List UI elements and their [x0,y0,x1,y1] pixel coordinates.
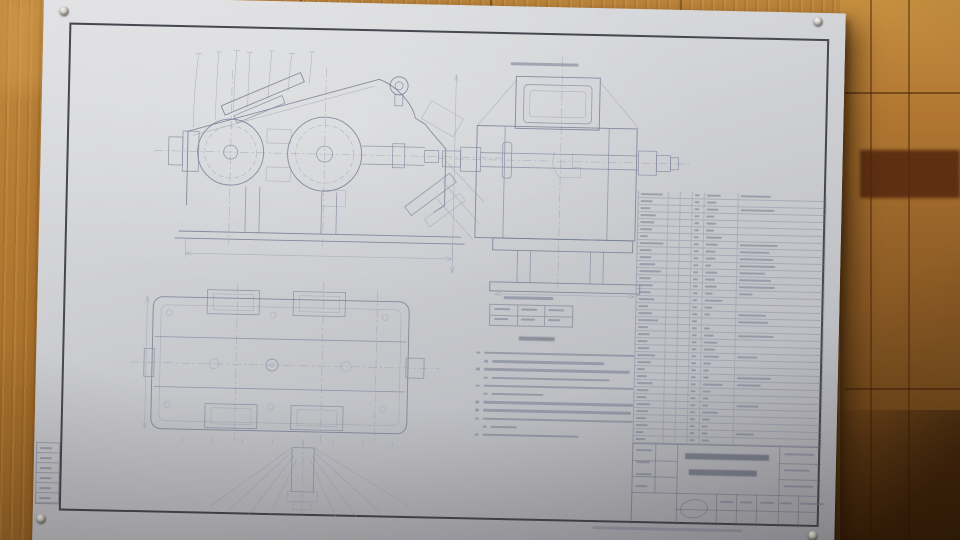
cell-text-smudge [705,278,715,280]
parts-table-cell [666,325,678,331]
parts-table-cell [665,353,677,359]
cell-text-smudge [639,277,651,279]
cell-text-smudge [739,258,773,261]
cell-text-smudge [704,341,718,343]
parts-table-cell [704,227,738,234]
parts-table-cell [639,198,669,205]
cell-text-smudge [640,242,664,245]
parts-table-cell [676,423,688,429]
cell-text-smudge [639,263,655,266]
cell-text-smudge [639,291,651,293]
parts-table-cell [701,374,735,381]
wood-dark-knot [860,150,960,198]
parts-table-cell [636,317,666,324]
parts-table-cell [690,311,702,317]
parts-table-cell [677,367,689,373]
parts-table-cell [676,430,688,436]
parts-table-cell [667,276,679,282]
characteristic-table [489,304,573,328]
cell-text-smudge [637,382,653,385]
note-line-smudge [484,368,630,374]
note-number-smudge [475,417,479,419]
wood-plank-seam [845,388,960,390]
cell-text-smudge [707,202,717,204]
cell-text-smudge [691,369,696,371]
parts-table-cell [664,423,676,429]
cell-text-smudge [705,271,717,273]
parts-table-cell [692,248,704,254]
cell-text-smudge [694,208,699,210]
cell-text-smudge [695,194,700,196]
parts-table-cell [689,346,701,352]
parts-table-cell [688,402,700,408]
cell-text-smudge [703,383,723,386]
parts-table-cell [690,339,702,345]
cell-text-smudge [693,285,698,287]
parts-table-cell [664,430,676,436]
cell-text-smudge [638,312,652,314]
cell-text-smudge [739,286,775,289]
cell-text-smudge [738,321,768,324]
parts-table-cell [675,437,687,443]
parts-table-cell [663,437,675,443]
note-number-smudge [476,352,480,354]
cell-text-smudge [635,485,647,487]
cell-text-smudge [783,485,813,488]
cell-text-smudge [702,397,708,399]
cell-text-smudge [691,348,696,350]
cell-text-smudge [690,418,695,420]
parts-table-cell [680,227,692,233]
cell-text-smudge [637,389,649,391]
parts-table-cell [701,381,735,388]
drawing-title-smudge [685,453,769,461]
cell-text-smudge [706,229,714,231]
title-block-right-smudges [778,447,821,496]
parts-table-cell [692,227,704,233]
photo-of-engineering-drawing [0,0,960,540]
parts-table-cell [666,311,678,317]
cell-text-smudge [639,298,655,301]
parts-table-cell [637,289,667,296]
parts-table-cell [666,339,678,345]
cell-text-smudge [691,355,696,357]
parts-table-cell [676,388,688,394]
margin-table-row [37,463,59,473]
cell-text-smudge [690,404,695,406]
parts-table-cell [665,367,677,373]
note-number-smudge [483,393,487,395]
parts-table-cell [680,213,692,219]
parts-table-cell [680,241,692,247]
cell-text-smudge [692,341,697,343]
part-leader-lines [193,49,315,130]
note-line-smudge [483,401,633,407]
dimension-lines [450,75,640,299]
parts-table-cell [704,234,738,241]
margin-table-row [36,493,58,503]
sheet-cast-shadow [815,410,960,540]
note-number-smudge [483,425,487,427]
cell-text-smudge [691,390,696,392]
cell-text-smudge [737,384,761,387]
lower-column-and-fan-lines [211,446,410,520]
cell-text-smudge [636,461,650,463]
parts-table-cell [669,199,681,205]
cell-text-smudge [704,313,710,315]
cell-text-smudge [640,214,656,217]
parts-table-cell [702,332,736,339]
parts-table-cell [666,304,678,310]
parts-table-cell [667,269,679,275]
cell-text-smudge [703,376,709,378]
cell-text-smudge [637,354,655,357]
cell-text-smudge [694,215,699,217]
cell-text-smudge [637,361,651,363]
parts-table-cell [664,416,676,422]
cell-text-smudge [694,243,699,245]
cell-text-smudge [693,264,698,266]
parts-table-cell [702,297,736,304]
parts-table-cell [639,191,669,198]
parts-table-cell [665,374,677,380]
parts-table-cell [688,388,700,394]
cell-text-smudge [702,418,710,420]
parts-table-cell [665,346,677,352]
cell-text-smudge [704,334,714,336]
cell-text-smudge [548,319,560,321]
parts-table-cell [668,248,680,254]
parts-table-cell [678,325,690,331]
cell-text-smudge [737,377,771,380]
parts-table-cell [676,409,688,415]
plan-view-drawing [141,286,446,522]
parts-table-cell [676,395,688,401]
cell-text-smudge [39,477,51,479]
parts-table-body [633,191,826,447]
drawing-sheet [32,0,846,540]
cell-text-smudge [692,327,697,329]
parts-table-cell [692,213,704,219]
parts-table-cell [693,199,705,205]
parts-table-cell [635,359,665,366]
parts-table-cell [691,290,703,296]
cell-text-smudge [639,256,651,258]
parts-table-cell [634,387,664,394]
parts-table-cell [700,395,734,402]
parts-table-cell [634,415,664,422]
parts-table-cell [676,402,688,408]
note-number-smudge [475,401,479,403]
parts-table-cell [677,374,689,380]
parts-table-cell [668,220,680,226]
cell-text-smudge [703,362,711,364]
parts-table-cell [638,226,668,233]
note-number-smudge [476,384,480,386]
parts-table-cell [678,304,690,310]
parts-table-cell [677,353,689,359]
parts-table-cell [703,255,737,262]
cell-text-smudge [640,207,650,209]
cell-text-smudge [40,467,52,469]
cell-text-smudge [736,405,758,408]
dimension-line [185,238,452,263]
cell-text-smudge [738,335,774,338]
note-line-smudge [492,360,604,365]
parts-table-cell [691,269,703,275]
margin-table-row [37,453,59,463]
cell-text-smudge [737,356,757,359]
cell-text-smudge [521,318,535,320]
cell-text-smudge [636,473,652,476]
drawing-title-smudge [689,469,757,476]
parts-table-cell [700,402,734,409]
parts-table-cell [637,268,667,275]
cell-text-smudge [705,264,711,266]
cell-text-smudge [703,369,709,371]
wood-plank-seam [845,92,960,94]
parts-table-cell [704,213,738,220]
cell-text-smudge [740,501,752,503]
cell-text-smudge [694,250,699,252]
cell-text-smudge [637,347,649,349]
cell-text-smudge [694,229,699,231]
parts-table-cell [634,422,664,429]
cell-text-smudge [800,503,824,506]
parts-table-cell [679,290,691,296]
parts-table-cell [691,283,703,289]
cell-text-smudge [706,223,716,225]
parts-table-cell [688,423,700,429]
parts-table-cell [704,248,738,255]
cell-text-smudge [694,236,699,238]
cell-text-smudge [704,299,722,302]
cell-text-smudge [691,362,696,364]
cell-text-smudge [760,502,774,504]
note-line-smudge [483,417,633,423]
cell-text-smudge [548,309,564,311]
parts-table-cell [688,395,700,401]
parts-table-cell [679,255,691,261]
parts-table-cell [678,332,690,338]
parts-table-cell [700,409,734,416]
cell-text-smudge [689,439,694,441]
cell-text-smudge [641,193,663,196]
cell-text-smudge [638,326,648,328]
parts-table-cell [676,416,688,422]
note-line-smudge [484,352,634,358]
cell-text-smudge [690,411,695,413]
cell-text-smudge [702,425,708,427]
parts-table-cell [705,199,739,206]
cell-text-smudge [494,318,508,320]
parts-table-cell [664,409,676,415]
cell-text-smudge [39,497,51,499]
cell-text-smudge [707,195,721,197]
parts-table-cell [637,261,667,268]
cell-text-smudge [702,432,708,434]
cell-text-smudge [639,270,661,273]
cell-text-smudge [739,265,775,268]
parts-table-cell [692,220,704,226]
parts-table-cell [635,352,665,359]
cell-text-smudge [636,424,648,426]
parts-table-cell [638,233,668,240]
parts-table-cell [635,373,665,380]
parts-table-cell [693,192,705,198]
cell-text-smudge [694,222,699,224]
parts-table-cell [668,241,680,247]
parts-table-cell [664,388,676,394]
cell-text-smudge [702,411,718,414]
parts-table-cell [701,346,735,353]
cell-text-smudge [691,383,696,385]
base-and-pedestal [490,238,641,294]
parts-table-cell [703,283,737,290]
cell-text-smudge [635,438,645,440]
parts-table-cell [705,192,739,199]
title-block-sig-smudges [632,444,677,493]
parts-table-cell [689,360,701,366]
parts-table-cell [692,206,704,212]
parts-table-cell [636,310,666,317]
parts-table-cell [638,212,668,219]
cell-text-smudge [638,305,648,307]
parts-table-cell [634,394,664,401]
cell-text-smudge [640,249,652,251]
cell-text-smudge [693,278,698,280]
parts-table-cell [701,367,735,374]
cell-text-smudge [40,457,52,459]
cell-text-smudge [691,376,696,378]
parts-table-cell [690,318,702,324]
parts-table-cell [702,339,736,346]
parts-table-cell [664,402,676,408]
cell-text-smudge [640,235,648,237]
margin-revision-table [35,442,60,505]
cell-text-smudge [639,284,653,286]
parts-table-cell [668,206,680,212]
parts-table-cell [638,205,668,212]
parts-table-cell [668,213,680,219]
cell-text-smudge [638,319,658,322]
cell-text-smudge [690,397,695,399]
parts-table-cell [635,380,665,387]
cell-text-smudge [741,195,771,198]
cell-text-smudge [39,487,51,489]
parts-table-cell [666,332,678,338]
cell-text-smudge [494,308,510,310]
cell-text-smudge [641,200,653,202]
cell-text-smudge [693,257,698,259]
margin-table-row [36,483,58,493]
parts-table-cell [677,381,689,387]
parts-table-cell [688,409,700,415]
parts-table-cell [690,325,702,331]
note-line-smudge [491,426,517,429]
parts-table-cell [701,360,735,367]
parts-table-cell [704,241,738,248]
parts-table-cell [692,241,704,247]
cell-text-smudge [693,271,698,273]
note-line-smudge [484,384,634,390]
cell-text-smudge [521,308,537,310]
cell-text-smudge [739,272,765,275]
cell-text-smudge [690,432,695,434]
cell-text-smudge [692,299,697,301]
cell-text-smudge [692,320,697,322]
parts-table-cell [667,283,679,289]
parts-table-cell [636,331,666,338]
parts-table-cell [703,290,737,297]
note-number-smudge [484,360,488,362]
note-number-smudge [475,409,479,411]
parts-table [632,191,826,447]
parts-table-cell [680,234,692,240]
parts-table-cell [637,282,667,289]
note-line-smudge [491,393,543,397]
parts-table-cell [690,297,702,303]
parts-table-cell [638,219,668,226]
parts-table-cell [691,276,703,282]
parts-table-cell [635,345,665,352]
parts-table-cell [664,395,676,401]
parts-table-cell [678,339,690,345]
cell-text-smudge [636,449,652,452]
parts-table-cell [679,283,691,289]
parts-table-cell [681,199,693,205]
parts-table-cell [665,360,677,366]
parts-table-cell [678,311,690,317]
cell-text-smudge [740,209,774,212]
parts-table-cell [700,423,734,430]
cell-text-smudge [702,404,708,406]
cell-text-smudge [640,228,652,230]
cell-text-smudge [690,425,695,427]
cell-text-smudge [720,501,734,503]
parts-table-cell [700,416,734,423]
parts-table-cell [677,346,689,352]
parts-table-cell [636,324,666,331]
cell-text-smudge [701,439,709,441]
cell-text-smudge [636,417,646,419]
note-line-smudge [483,434,579,438]
margin-table-row [37,443,59,453]
parts-table-cell [703,269,737,276]
parts-table-cell [668,234,680,240]
cell-text-smudge [706,209,718,211]
cell-text-smudge [692,313,697,315]
cell-text-smudge [636,410,648,412]
bolt-holes [164,310,388,413]
parts-table-cell [704,206,738,213]
cell-text-smudge [704,327,710,329]
parts-table-cell [666,297,678,303]
parts-table-cell [689,353,701,359]
parts-table-cell [691,262,703,268]
cell-text-smudge [739,293,753,295]
parts-table-cell [690,304,702,310]
cell-text-smudge [739,279,771,282]
parts-table-cell [702,304,736,311]
parts-table-cell [636,296,666,303]
cell-text-smudge [740,244,778,247]
parts-table-cell [637,275,667,282]
parts-table-cell [638,247,668,254]
cell-text-smudge [636,403,650,405]
cell-text-smudge [693,292,698,294]
parts-table-cell [700,388,734,395]
